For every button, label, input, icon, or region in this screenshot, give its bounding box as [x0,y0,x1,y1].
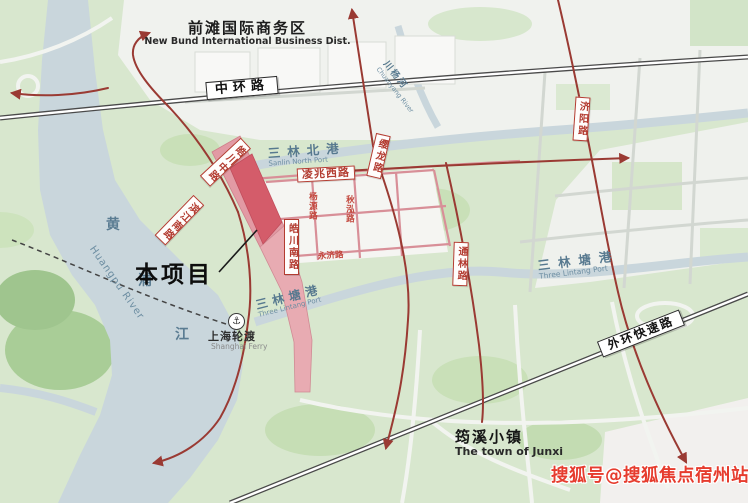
location-map: 前滩国际商务区 New Bund International Business … [0,0,748,503]
yongji-road-label: 永济路 [318,251,344,262]
project-label: 本项目 [135,263,213,288]
haochuan-south-road-label: 皓川南路 [284,219,299,275]
junxi-town-cn: 筠溪小镇 [455,429,563,446]
map-graphic [0,0,748,503]
huangpu-char-1: 黄 [106,214,120,234]
anchor-icon: ⚓ [228,313,245,330]
yangyuan-road-label: 杨源路 [307,192,316,221]
qiuhong-road-label: 秋泓路 [344,195,353,224]
new-bund-cn: 前滩国际商务区 [140,20,355,37]
junxi-town-en: The town of Junxi [455,446,563,458]
jiyang-road-label: 济阳路 [572,97,590,142]
new-bund-en: New Bund International Business Dist. [140,37,355,47]
sohu-watermark: 搜狐号@搜狐焦点宿州站 [551,467,748,486]
shanghai-ferry-en: Shanghai Ferry [211,343,267,351]
huangpu-char-3: 江 [175,324,189,344]
new-bund-district-label: 前滩国际商务区 New Bund International Business … [140,20,355,47]
junxi-town-label: 筠溪小镇 The town of Junxi [455,429,563,458]
tonglin-road-label: 通林路 [452,242,468,286]
